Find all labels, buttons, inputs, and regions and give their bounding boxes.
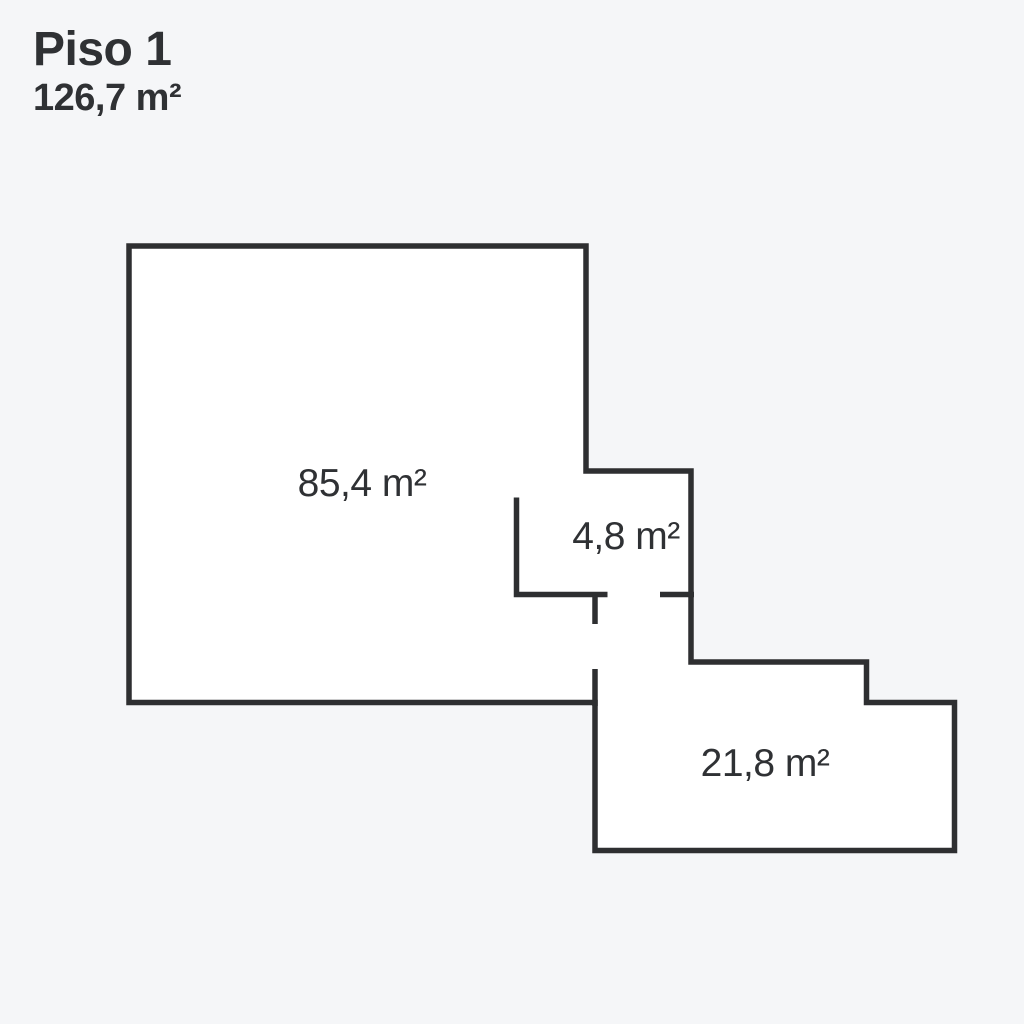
floor-plan-view: Piso 1 126,7 m² 85,4 m² 4,8 m² 21,8 m² <box>0 0 1024 1024</box>
room-area-label-main: 85,4 m² <box>298 462 427 505</box>
floor-plan-canvas: Piso 1 126,7 m² 85,4 m² 4,8 m² 21,8 m² <box>0 0 1024 1024</box>
page-title: Piso 1 <box>33 23 171 76</box>
room-area-label-small: 4,8 m² <box>572 515 680 558</box>
total-area-label: 126,7 m² <box>33 77 181 119</box>
header: Piso 1 126,7 m² <box>33 23 181 119</box>
room-area-label-bottom: 21,8 m² <box>701 742 830 785</box>
